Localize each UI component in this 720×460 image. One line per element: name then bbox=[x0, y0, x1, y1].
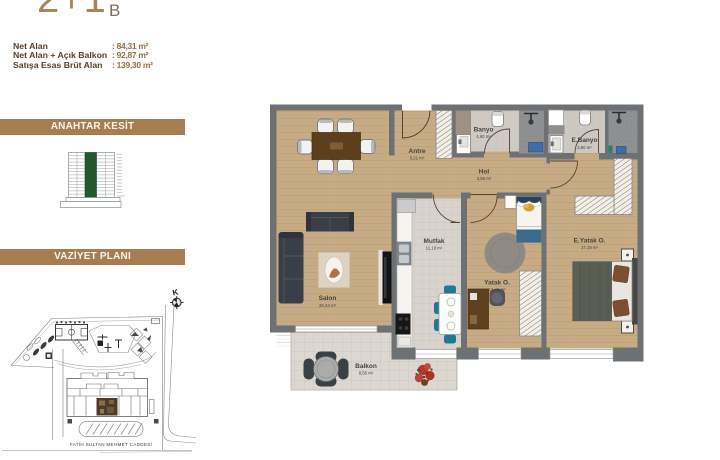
svg-text:Balkon: Balkon bbox=[355, 363, 377, 370]
svg-text:FATİH SULTAN MEHMET CADDESİ: FATİH SULTAN MEHMET CADDESİ bbox=[70, 441, 152, 447]
svg-text:4,60 m²: 4,60 m² bbox=[476, 134, 491, 139]
svg-text:3,55 m²: 3,55 m² bbox=[477, 176, 492, 181]
svg-text:Hol: Hol bbox=[479, 169, 490, 176]
svg-text:Yatak O.: Yatak O. bbox=[484, 280, 510, 287]
svg-text:E.Banyo: E.Banyo bbox=[571, 137, 597, 144]
svg-text:Banyo: Banyo bbox=[474, 127, 494, 134]
svg-text:12,40 m²: 12,40 m² bbox=[489, 287, 507, 292]
svg-text:Antre: Antre bbox=[409, 148, 426, 155]
svg-text:5,21 m²: 5,21 m² bbox=[410, 156, 425, 161]
svg-text:11,18 m²: 11,18 m² bbox=[426, 246, 443, 251]
svg-text:Mutfak: Mutfak bbox=[424, 238, 445, 245]
svg-text:26,24 m²: 26,24 m² bbox=[319, 303, 337, 308]
svg-text:3,90 m²: 3,90 m² bbox=[577, 145, 592, 150]
svg-text:8,56 m²: 8,56 m² bbox=[359, 371, 374, 376]
svg-text:K: K bbox=[172, 287, 180, 297]
svg-text:17,19 m²: 17,19 m² bbox=[581, 245, 599, 250]
svg-text:Salon: Salon bbox=[319, 295, 337, 302]
svg-text:E.Yatak O.: E.Yatak O. bbox=[574, 238, 606, 245]
